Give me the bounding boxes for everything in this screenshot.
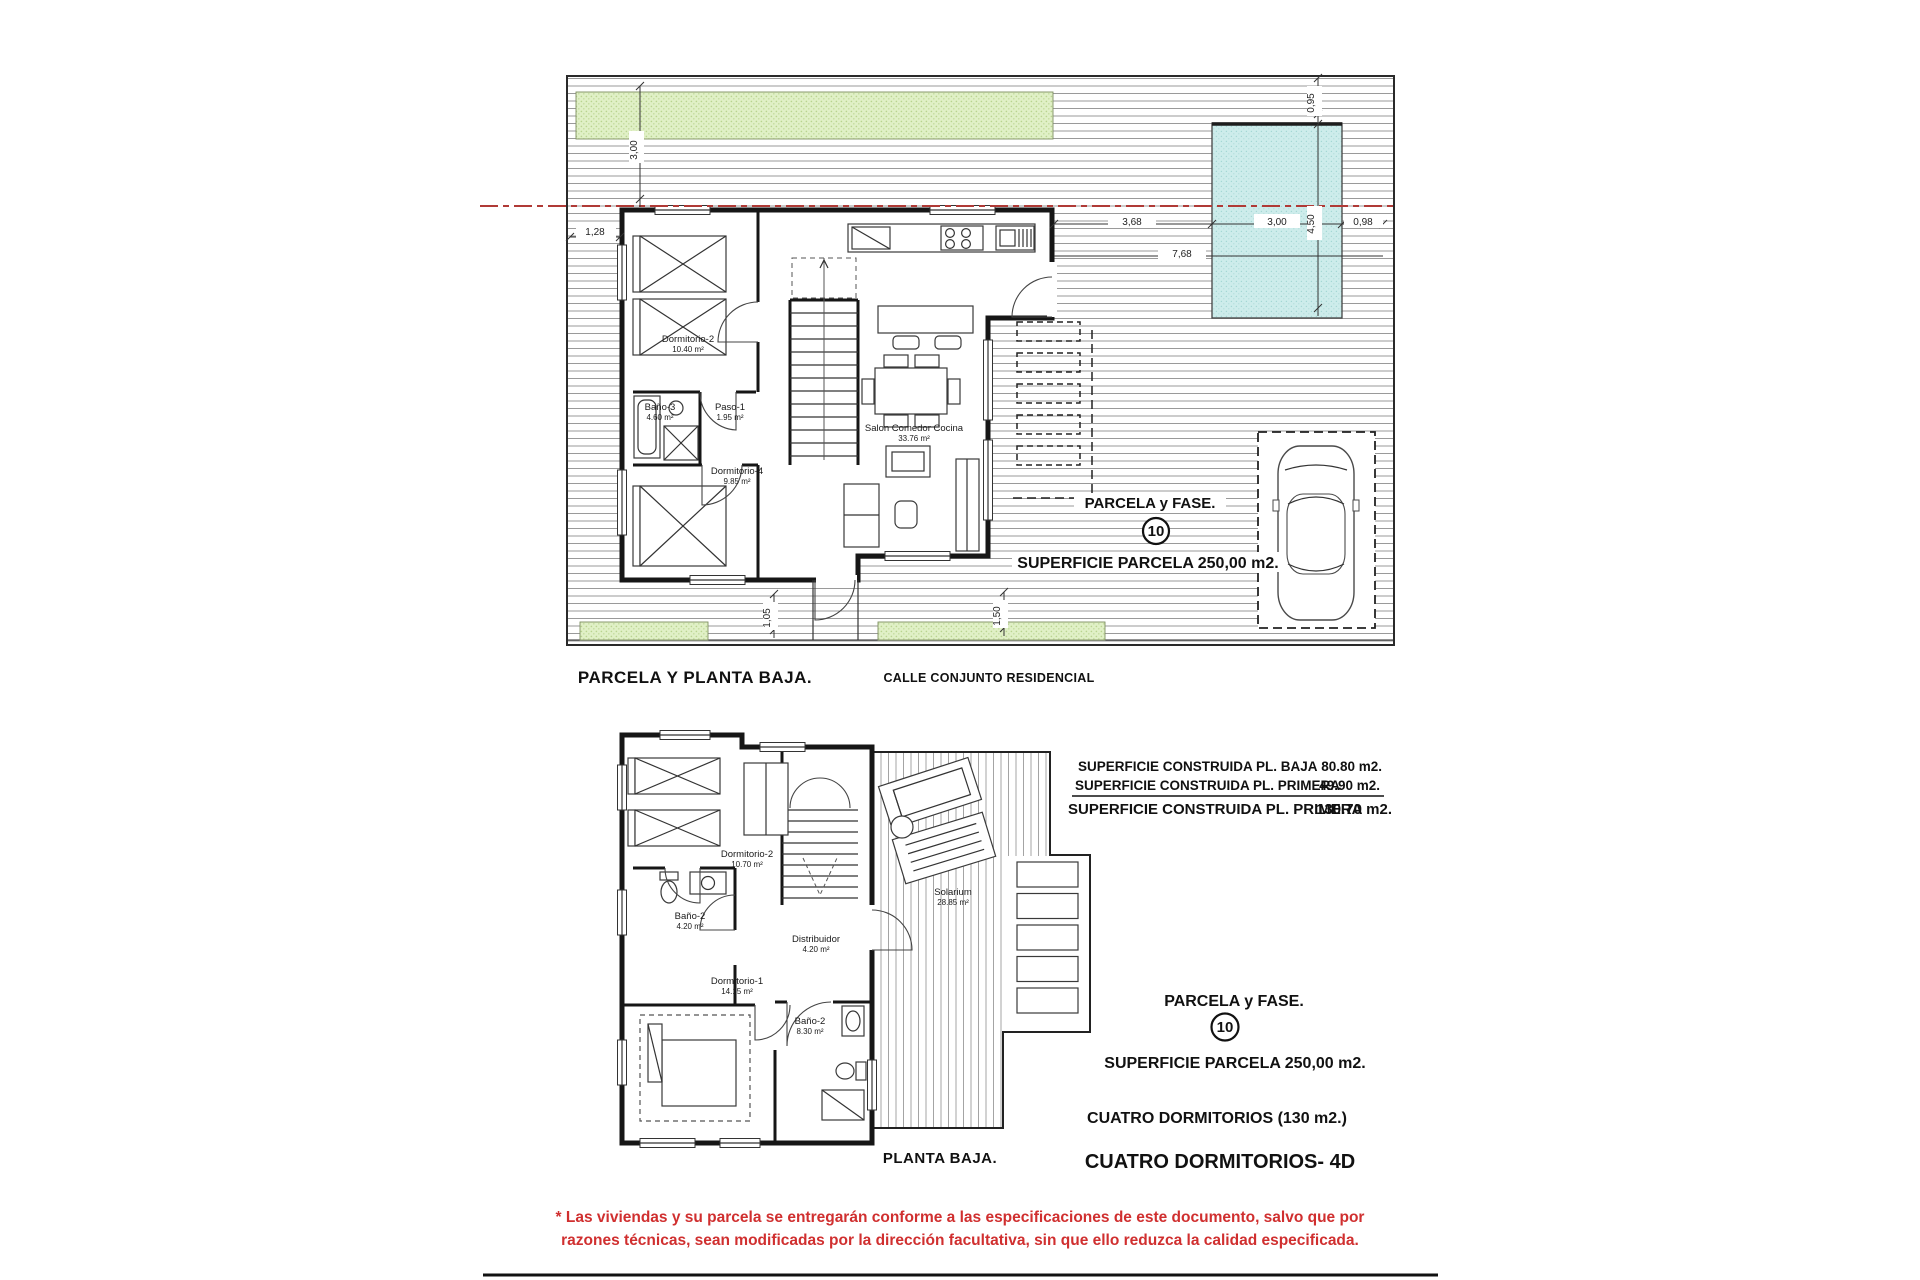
dim-3-00-pool: 3,00: [1267, 217, 1287, 228]
solarium: Solarium 28.85 m²: [872, 752, 1090, 1128]
summary-parcel-number: 10: [1217, 1019, 1234, 1036]
kitchen-counter: [848, 224, 1035, 252]
parking-area: [1258, 432, 1375, 628]
room-f-distribuidor-area: 4.20 m²: [802, 945, 829, 954]
room-f-bano-2: Baño-2: [675, 911, 706, 922]
bed-dormitorio-4: [633, 486, 726, 566]
room-paso-1: Paso-1: [715, 402, 745, 413]
room-f-dormitorio-2-area: 10.70 m²: [731, 860, 763, 869]
street-label: CALLE CONJUNTO RESIDENCIAL: [883, 671, 1094, 685]
dim-3-68: 3,68: [1122, 217, 1142, 228]
room-f-bano-2b: Baño-2: [795, 1016, 826, 1027]
plan-drawing: 3,00 1,28 0,95 4,50 3,00 0,98 3,68 7,68 …: [0, 0, 1920, 1280]
summary-modelo: CUATRO DORMITORIOS- 4D: [1085, 1151, 1355, 1173]
room-bano-3: Baño-3: [645, 402, 676, 413]
superficie-parcela-label: SUPERFICIE PARCELA 250,00 m2.: [1017, 555, 1278, 572]
summary-block: PARCELA y FASE. 10 SUPERFICIE PARCELA 25…: [1085, 993, 1366, 1173]
room-salon-area: 33.76 m²: [898, 434, 930, 443]
disclaimer-line1: * Las viviendas y su parcela se entregar…: [556, 1209, 1365, 1226]
top-plan-parcela: 3,00 1,28 0,95 4,50 3,00 0,98 3,68 7,68 …: [480, 74, 1394, 645]
areas-row2-label: SUPERFICIE CONSTRUIDA PL. PRIMERA: [1075, 778, 1340, 793]
dim-1-50: 1,50: [992, 606, 1003, 626]
room-f-bano-2b-area: 8.30 m²: [796, 1027, 823, 1036]
planters: [1017, 862, 1078, 1013]
areas-row3-value: 130.70 m2.: [1316, 801, 1392, 818]
room-f-bano-2-area: 4.20 m²: [676, 922, 703, 931]
summary-parcela-label: PARCELA y FASE.: [1164, 993, 1304, 1010]
room-paso-1-area: 1.95 m²: [716, 413, 743, 422]
room-f-distribuidor: Distribuidor: [792, 934, 840, 945]
dim-7-68: 7,68: [1172, 249, 1192, 260]
built-areas-table: SUPERFICIE CONSTRUIDA PL. BAJA 80.80 m2.…: [1068, 759, 1392, 818]
room-solarium-area: 28.85 m²: [937, 898, 969, 907]
dim-0-95: 0,95: [1306, 93, 1317, 113]
summary-superficie: SUPERFICIE PARCELA 250,00 m2.: [1104, 1055, 1365, 1072]
room-dormitorio-2: Dormitorio-2: [662, 334, 714, 345]
room-bano-3-area: 4.60 m²: [646, 413, 673, 422]
bottom-plan: Solarium 28.85 m²: [618, 731, 1091, 1168]
bottom-plan-title: PLANTA BAJA.: [883, 1150, 997, 1167]
areas-row2-value: 49.90 m2.: [1319, 778, 1380, 793]
dim-1-05: 1,05: [762, 608, 773, 628]
areas-row1-value: 80.80 m2.: [1321, 759, 1382, 774]
sink-icon: [996, 226, 1034, 250]
room-salon: Salon Comedor Cocina: [865, 423, 964, 434]
dim-4-50: 4,50: [1306, 214, 1317, 234]
stove-icon: [941, 226, 983, 250]
room-dormitorio-2-area: 10.40 m²: [672, 345, 704, 354]
dim-3-00-left: 3,00: [629, 140, 640, 160]
dim-1-28: 1,28: [585, 227, 605, 238]
room-f-dormitorio-1: Dormitorio-1: [711, 976, 763, 987]
room-f-dormitorio-2: Dormitorio-2: [721, 849, 773, 860]
room-dormitorio-4: Dormitorio-4: [711, 466, 763, 477]
parcela-fase-label: PARCELA y FASE.: [1085, 495, 1216, 512]
parcel-number: 10: [1148, 523, 1165, 540]
room-dormitorio-4-area: 9.85 m²: [723, 477, 750, 486]
disclaimer-line2: razones técnicas, sean modificadas por l…: [561, 1232, 1359, 1249]
side-table-icon: [891, 816, 913, 838]
room-solarium: Solarium: [934, 887, 972, 898]
house-first-floor: Dormitorio-2 10.70 m² Baño-2 4.20 m² Dis…: [618, 731, 913, 1148]
room-f-dormitorio-1-area: 14.15 m²: [721, 987, 753, 996]
areas-row1-label: SUPERFICIE CONSTRUIDA PL. BAJA: [1078, 759, 1318, 774]
car-icon: [1273, 446, 1359, 620]
plan-sheet: 3,00 1,28 0,95 4,50 3,00 0,98 3,68 7,68 …: [0, 0, 1920, 1280]
dim-0-98: 0,98: [1353, 217, 1373, 228]
top-plan-title: PARCELA Y PLANTA BAJA.: [578, 668, 812, 687]
summary-tipologia: CUATRO DORMITORIOS (130 m2.): [1087, 1110, 1347, 1127]
disclaimer: * Las viviendas y su parcela se entregar…: [483, 1209, 1438, 1275]
